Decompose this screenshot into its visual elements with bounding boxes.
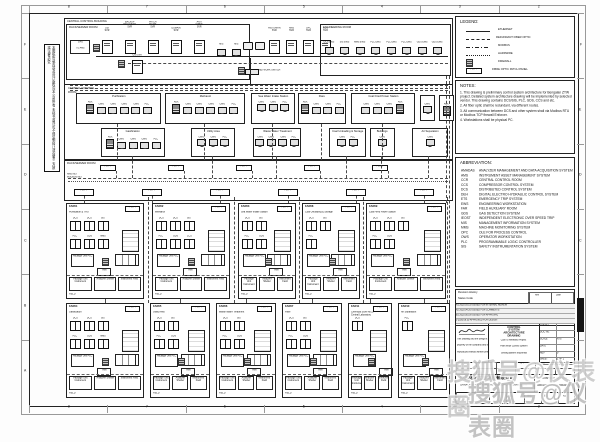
fopp-label: FO PP [327, 306, 334, 308]
workstation-icon [278, 139, 287, 146]
system-cabinet-icon [122, 230, 139, 252]
cabinet-label: DCS [309, 217, 314, 218]
ethernet-bus [96, 56, 448, 57]
package-unit-plc-label: Package Unit PLC [156, 355, 177, 358]
workstation-icon [325, 47, 334, 54]
fibre-optic-patch-panel: FO PP [277, 206, 292, 212]
inter-far-line [234, 197, 235, 303]
grid-letter-cell: A [21, 340, 29, 405]
workstation-label: OWS [425, 103, 430, 104]
grid-letter: F [24, 43, 26, 47]
drop-line [288, 196, 289, 203]
abbreviation-row: DEH DIGITAL ELECTRO HYDRAULIC CONTROL SY… [461, 193, 574, 197]
server-unit: BACKUP RECOVERY SVR [123, 33, 137, 54]
system-cabinet-icon [208, 230, 225, 252]
server-icon [269, 40, 280, 54]
cabinet-label: PLC [289, 335, 293, 336]
far-section: FAR04 Gasification FO PP DCS DCS [66, 303, 144, 398]
cabinet-icon [98, 339, 109, 349]
marshalling-cabinet-icon [115, 254, 139, 266]
workstation-label: OWS [99, 103, 104, 104]
far-section: FAR07 Flare FO PP DCS SIS [282, 303, 342, 398]
workstation-icon [280, 104, 289, 111]
grid-number-cell: 7 [107, 405, 185, 413]
inter-far-line [148, 197, 149, 303]
package-unit-instrument-box: Package Unit Instrument [69, 376, 92, 390]
cabinet-row-1: DCS DCS SIS [156, 217, 194, 231]
cabinet-unit: GDS [168, 335, 178, 349]
server-unit: PATCH MGMT SVR [146, 33, 160, 54]
workstation-icon [433, 47, 442, 54]
workstation-unit: OWS [108, 103, 117, 114]
instrument-field-label: Instrument Field [191, 377, 206, 382]
fibre-optic-patch-panel: FO PP [373, 306, 388, 312]
firewall-icon [102, 358, 109, 366]
field-equipment-row: Package Unit Instrument Analyzer Shelter… [285, 376, 339, 390]
cabinet-icon [306, 239, 317, 249]
grid-number: 4 [381, 405, 383, 409]
far-code: FAR03 [241, 205, 256, 208]
group-label: Air Separation [421, 130, 438, 132]
cabinet-unit: SIS [320, 217, 330, 231]
cabinet-label: SIS [187, 217, 191, 218]
far-code: FAR04 [69, 305, 90, 308]
group-label: Gasification [126, 130, 140, 132]
ews-unit: PLC EWS [371, 40, 381, 54]
drop-line [246, 299, 247, 303]
switch-riser [250, 58, 251, 84]
abbreviation-row: IEOST INDEPENDENT ELECTRONIC OVER SPEED … [461, 217, 574, 221]
abbreviation-key: EWS [461, 202, 479, 206]
rack-room-title: RACK/SERVER ROOM [69, 26, 97, 29]
cabinet-row-2: PLC GDS MMS [70, 235, 108, 249]
field-label: FIELD [369, 293, 375, 295]
cabinet-label: DCS [159, 217, 164, 218]
cabinet-unit: MMS [98, 335, 108, 349]
far-code: FAR01 [69, 205, 90, 208]
drop-line [424, 299, 425, 303]
server-label: OPC SVR [306, 27, 311, 32]
cabinet-label: CCS [187, 235, 192, 236]
analyzer-shelter-box: Analyzer Shelter [364, 376, 375, 390]
grid-number-cell: 5 [264, 5, 342, 13]
drop-line [84, 196, 85, 203]
cabinet-unit: PLC [370, 235, 380, 249]
line-sample: FO PP [466, 68, 482, 74]
server-label: OSI SVR [104, 27, 109, 32]
field-divider [239, 275, 295, 276]
cabinet-label: GDS [237, 335, 242, 336]
group-monitors: OWS OWS OWS [255, 136, 299, 147]
rack-room-2-title: RACK/SERVER ROOM [67, 162, 95, 165]
ews-unit: PLC EWS [386, 40, 396, 54]
cabinet-unit: SIS [234, 317, 244, 331]
cabinet-label: SIS [401, 217, 405, 218]
package-unit-instrument-label: Package Unit Instrument [220, 377, 235, 382]
package-unit-instrument-box: Package Unit Instrument [285, 376, 302, 390]
confidentiality-text-en: THIS DRAWING AND THE DESIGN IT COVERS SH… [45, 171, 56, 172]
abbreviation-key: AMS [461, 174, 479, 178]
abbreviation-row: EWS ENGINEERING WORKSTATION [461, 202, 574, 206]
hmi-label: HMI [318, 369, 322, 371]
server-icon [303, 40, 314, 54]
grid-number-cell: 4 [342, 5, 420, 13]
analyzer-shelter-box: Analyzer Shelter [417, 376, 431, 390]
revision-header: Revision History Status Code Rev Date [456, 290, 575, 304]
operator-group: OWS [420, 95, 435, 121]
grid-number: 4 [381, 5, 383, 9]
operator-group: Sea Water Intake Station OWS OWS [251, 93, 295, 124]
cabinet-unit: DCS [154, 317, 164, 331]
workstation-unit: OWS [117, 138, 126, 149]
hmi-label: HMI [338, 269, 342, 271]
system-cabinet-icon [370, 330, 387, 352]
workstation-icon [86, 104, 94, 114]
far-section: FAR05 Utility Area FO PP DCS SIS [150, 303, 210, 398]
cabinet-unit: PLC [286, 335, 296, 349]
server-unit: HISTORIAN SVR [268, 33, 280, 54]
cabinet-unit: DCS [306, 217, 316, 231]
workstation-unit: AUX [172, 101, 181, 114]
drawing-title: CONTROL SYSTEM ARCHITECTURE DRAWING [502, 326, 524, 338]
workstation-icon [312, 107, 321, 114]
cabinet-icon [286, 339, 297, 349]
workstation-label: OWS [257, 136, 262, 137]
far-code: FAR06 [219, 305, 235, 308]
firewall-icon [178, 358, 185, 366]
grid-number-cell: 8 [29, 5, 107, 13]
ccr-trunk [70, 90, 448, 91]
instrument-field-label: Instrument Field [205, 278, 226, 281]
drop-line [116, 171, 117, 178]
ews-label: DCS EWS [324, 41, 335, 43]
workstation-label: OWS [270, 101, 275, 102]
workstation-unit: OWS [140, 138, 149, 149]
legend-item: REDUNDANT FIBER OPTIC [462, 35, 572, 43]
fopp-label: FO PP [353, 189, 360, 191]
far-name: Methanol [155, 211, 201, 214]
field-label: DATE [540, 345, 546, 347]
server-icon [102, 40, 113, 54]
drop-line [320, 171, 321, 178]
field-value: NTS [557, 338, 564, 340]
package-unit-instrument-label: Package Unit Instrument [286, 377, 301, 382]
drop-line [252, 171, 253, 178]
cabinet-label: SIS [237, 317, 241, 318]
far-name: Purification & TRU [69, 211, 115, 214]
firewall-icon [118, 60, 125, 68]
analyzer-shelter-label: Analyzer Shelter [305, 377, 320, 382]
workstation-icon [195, 107, 204, 114]
fopp-label: FO PP [431, 206, 438, 208]
legend-item: MODBUS [462, 43, 572, 51]
group-label: Methanol [199, 95, 210, 97]
ccr-trunk [70, 85, 448, 86]
server-label: HISTORIAN SVR [268, 27, 280, 32]
abbreviation-value: PROGRAMMABLE LOGIC CONTROLLER [479, 240, 541, 244]
field-label: FIELD [285, 392, 291, 394]
abbreviation-value: DISTRIBUTED CONTROL SYSTEM [479, 188, 532, 192]
field-divider [303, 275, 359, 276]
line-sample [466, 47, 490, 48]
ews-row: DCS EWS SIS EWS MMS EWS PLC EWS PLC EWS … [324, 40, 443, 54]
instrument-field-label: Instrument Field [257, 377, 272, 382]
far-section: FAR09 Coal Fired Power Station FO PP DCS… [366, 203, 446, 299]
workstation-unit: OWS [337, 136, 346, 147]
instrument-field-box: Instrument Field [256, 376, 273, 390]
workstation-unit: PLC [152, 138, 161, 149]
fibre-optic-patch-panel: FO PP [346, 189, 366, 196]
field-label: SCALE [540, 338, 546, 340]
cabinet-icon [370, 221, 381, 231]
abbreviation-value: COMPRESSOR CONTROL SYSTEM [479, 183, 533, 187]
abbreviation-row: OWS OPERATOR WORKSTATION [461, 236, 574, 240]
cabinet-icon [156, 221, 167, 231]
cabinet-icon [306, 221, 317, 231]
operator-group: Purification AUX OWS [76, 93, 161, 124]
cabinet-unit: DCS [286, 317, 296, 331]
far-name: Coal Unloading & Storage [305, 211, 339, 214]
server-unit: ANTI VIRUS SVR [192, 33, 206, 54]
abbreviation-key: IEOST [461, 217, 479, 221]
ews-label: MMS EWS [354, 41, 365, 43]
field-equipment-row: Package Unit Instrument Analyzer Shelter… [401, 376, 447, 390]
firewall-icon [422, 358, 429, 366]
cabinet-icon [154, 321, 165, 331]
group-monitors: AUX OWS OWS [172, 101, 239, 114]
legend-sample [466, 55, 492, 56]
firewall-icon [403, 258, 410, 266]
abbreviation-row: ETS EMERGENCY TRIP SYSTEM [461, 198, 574, 202]
abbreviation-row: GDS GAS DETECTION SYSTEM [461, 212, 574, 216]
cabinet-label: GDS [173, 235, 178, 236]
monitor-icon [232, 49, 241, 56]
inter-far-line [299, 197, 300, 303]
package-unit-instrument-box: Package Unit Instrument [241, 277, 257, 291]
workstation-unit: OWS [255, 136, 264, 147]
workstation-unit: OWS [257, 101, 266, 112]
field-divider [217, 374, 275, 375]
package-unit-plc-box: Package Unit PLC [221, 354, 244, 367]
grid-number: 5 [303, 5, 305, 9]
server-label: PATCH MGMT SVR [149, 21, 156, 28]
workstation-icon [257, 104, 266, 111]
system-cabinet-icon [320, 330, 337, 352]
fopp-label: FO PP [309, 165, 316, 167]
cabinet-unit: SIS [98, 317, 108, 331]
package-unit-plc-label: Package Unit PLC [288, 355, 309, 358]
cabinet-label: GDS [87, 235, 92, 236]
workstation-icon [384, 107, 393, 114]
monitor-unit: MIS [231, 42, 241, 56]
drop-line [356, 196, 357, 203]
workstation-label: PLC [222, 136, 226, 137]
cabinet-row-1: DCS SIS [154, 317, 178, 331]
workstation-unit: OWS [323, 103, 332, 114]
cabinet-unit: GDS [84, 235, 94, 249]
abbreviation-key: OPC [461, 231, 479, 235]
workstation-icon [402, 47, 411, 54]
workstation-label: OWS [220, 103, 225, 104]
workstation-icon [301, 104, 309, 114]
right-riser [449, 76, 450, 303]
cabinet-label: SIS [101, 217, 105, 218]
fopp-label: FO PP [377, 165, 384, 167]
far-code: FAR05 [153, 305, 169, 308]
system-cabinet-icon [338, 230, 355, 252]
revision-text: 0 2020.06.30 APPROVED FOR DESIGN [456, 319, 501, 321]
abbreviation-key: SIS [461, 245, 479, 249]
field-row: SCALE NTS [540, 338, 575, 345]
abbreviation-row: PLC PROGRAMMABLE LOGIC CONTROLLER [461, 240, 574, 244]
far-name: Sea Water Intake Station [241, 211, 275, 214]
fopp-label: FO PP [217, 189, 224, 191]
package-unit-plc-label: Package Unit PLC [72, 355, 93, 358]
group-label: Coal Fired Power Station [368, 95, 398, 97]
notes-title: NOTES: [460, 84, 476, 89]
workstation-icon [218, 107, 227, 114]
ews-label: PLC EWS [370, 41, 380, 43]
analyzer-shelter-label: Analyzer Shelter [260, 278, 274, 283]
drop-line [204, 124, 205, 160]
analyzer-shelter-box: Analyzer Shelter [238, 376, 255, 390]
package-unit-plc-box: Package Unit PLC [157, 254, 180, 267]
workstation-label: AUX [108, 136, 113, 137]
package-unit-plc-label: Package Unit PLC [158, 255, 179, 258]
analyzer-shelter-box: Analyzer Shelter [323, 277, 339, 291]
instrument-field-box: Instrument Field [277, 277, 293, 291]
workstation-unit: PLC [143, 103, 152, 114]
cabinet-row-2: PLC GDS [220, 335, 244, 349]
field-equipment-row: Package Unit Instrument Analyzer Shelter… [69, 277, 141, 291]
package-unit-plc-label: Package Unit PLC [222, 355, 243, 358]
fibre-optic-patch-panel: FO PP [414, 189, 434, 196]
bus-label-ams: AMS NET [67, 173, 77, 175]
package-unit-plc-box: Package Unit PLC [71, 354, 94, 367]
workstation-label: PLC [282, 101, 286, 102]
server-unit: OPC SVR [302, 33, 314, 54]
analyzer-shelter-box: Analyzer Shelter [172, 376, 189, 390]
abbreviation-value: ANALYZER MANAGEMENT AND DATA ACQUISITION… [479, 169, 573, 173]
workstation-label: AUX [87, 101, 92, 102]
group-label: Waste Water Treatment [263, 130, 291, 132]
server-icon [171, 40, 182, 54]
far-code: FAR11 [351, 305, 362, 308]
cabinet-unit: PLC [402, 317, 412, 331]
workstation-unit: OWS [384, 103, 393, 114]
grid-letter-cell: C [21, 209, 29, 274]
workstation-icon [361, 107, 370, 114]
grid-number: 6 [224, 405, 226, 409]
far-section: FAR01 Purification & TRU FO PP DCS DCS [66, 203, 144, 299]
workstation-label: OWS [185, 103, 190, 104]
property-note-line: This drawing and the design it covers ar… [457, 338, 489, 340]
firewall-icon [93, 44, 100, 52]
cabinet-icon [156, 239, 167, 249]
field-divider [399, 374, 449, 375]
cabinet-unit: PLC [154, 335, 164, 349]
server-label: DOMAIN SVR [171, 27, 180, 32]
field-label: FIELD [153, 392, 159, 394]
cabinet-unit: GDS [300, 335, 310, 349]
fibre-optic-patch-panel: FO PP [191, 306, 206, 312]
cabinet-unit: GDS [256, 235, 266, 249]
drop-line [346, 156, 347, 178]
cabinet-unit: DCS [70, 217, 80, 231]
abbreviation-row: CCS COMPRESSOR CONTROL SYSTEM [461, 183, 574, 187]
cabinet-label: DCS [87, 317, 92, 318]
server-label: AMS SVR [289, 27, 294, 32]
cabinet-icon [84, 239, 95, 249]
cabinet-unit: DCS [84, 317, 94, 331]
group-label: Utility Area [207, 130, 220, 132]
package-unit-plc-box: Package Unit PLC [71, 254, 94, 267]
server-icon [148, 40, 159, 54]
legend-sample: FO PP [466, 68, 486, 74]
drop-line [388, 171, 389, 178]
group-monitors: OWS [423, 103, 432, 114]
cabinet-label: DCS [73, 317, 78, 318]
group-label: Purification [112, 95, 125, 97]
abbreviation-key: DEH [461, 193, 479, 197]
ews-label: GDS EWS [432, 41, 443, 43]
far-name: Air Separation [401, 311, 431, 314]
instrument-field-label: Instrument Field [342, 278, 356, 283]
cabinet-unit: DCS [242, 217, 252, 231]
legend-label: ETHERNET [498, 28, 513, 31]
abbreviation-key: MMS [461, 226, 479, 230]
ams-net-bus [68, 178, 448, 179]
legend-items: ETHERNET REDUNDANT FIBER OPTIC MODBUS [462, 27, 572, 75]
package-unit-instrument-label: Package Unit Instrument [402, 377, 414, 385]
workstation-unit: OWS [312, 103, 321, 114]
cabinet-icon [256, 221, 267, 231]
grid-letter-cell: F [577, 13, 584, 78]
workstation-icon [117, 142, 126, 149]
revision-text: A1 2020.03.15 ISSUED FOR INTERNAL REVIEW [456, 304, 501, 306]
property-note-line: property of the company and shall not be [457, 344, 489, 346]
cabinet-row-1: DCS SIS [306, 217, 330, 231]
field-row: JOB NO. [540, 324, 575, 331]
package-unit-plc-box: Package Unit PLC [243, 254, 266, 267]
analyzer-shelter-box: Analyzer Shelter [259, 277, 275, 291]
fibre-optic-patch-panel: FO PP [236, 165, 252, 171]
hmi-label: HMI [102, 369, 106, 371]
fopp-label: FO PP [377, 306, 384, 308]
grid-letter: D [24, 173, 26, 177]
fibre-optic-patch-panel: FO PP [74, 189, 94, 196]
cabinet-label: PLC [223, 335, 227, 336]
cabinet-icon [84, 339, 95, 349]
cabinet-icon [234, 321, 245, 331]
package-unit-instrument-box: Package Unit Instrument [351, 376, 362, 390]
fopp-label: FO PP [129, 306, 136, 308]
instrument-field-label: Instrument Field [119, 377, 140, 380]
abbreviation-row: MIS MANAGEMENT INFORMATION SYSTEM [461, 221, 574, 225]
cabinet-label: DCS [245, 217, 250, 218]
confidentiality-text-cn: 本图纸所载内容及设计版权归本公司所有 未经书面许可不得复制转让或向第三方披露 违… [45, 45, 56, 171]
far-code: FAR09 [369, 205, 390, 208]
monitor-label: MIS [234, 43, 238, 45]
field-divider [67, 374, 143, 375]
operator-group: Methanol AUX OWS [165, 93, 245, 124]
cabinet-unit: PLC [220, 335, 230, 349]
package-unit-instrument-label: Package Unit Instrument [156, 278, 177, 283]
drop-line [132, 156, 133, 178]
cabinet-unit: GDS [234, 335, 244, 349]
cabinet-unit: SIS [184, 217, 194, 231]
abbreviation-value: OLE FOR PROCESS CONTROL [479, 231, 527, 235]
